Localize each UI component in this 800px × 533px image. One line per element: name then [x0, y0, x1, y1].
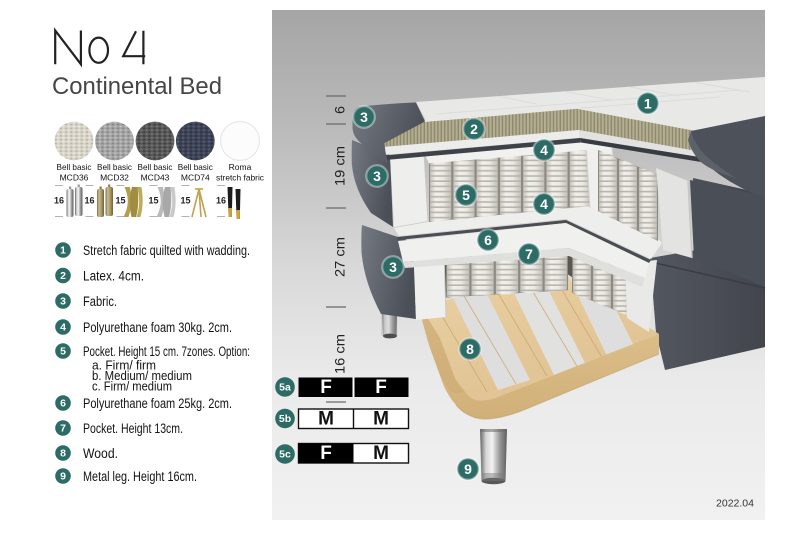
svg-text:MCD36: MCD36: [60, 173, 89, 183]
svg-text:16: 16: [54, 196, 64, 206]
svg-text:16: 16: [84, 196, 94, 206]
svg-text:Bell basic: Bell basic: [178, 162, 214, 172]
svg-text:2: 2: [60, 270, 66, 282]
svg-text:M: M: [373, 443, 389, 464]
svg-text:MCD32: MCD32: [100, 173, 129, 183]
svg-text:8: 8: [60, 448, 66, 460]
svg-text:6: 6: [484, 232, 492, 248]
svg-text:M: M: [318, 409, 334, 430]
svg-text:27 cm: 27 cm: [332, 237, 348, 277]
svg-text:Fabric.: Fabric.: [83, 294, 117, 309]
svg-text:7: 7: [525, 246, 533, 262]
svg-text:8: 8: [466, 341, 474, 357]
svg-text:F: F: [320, 377, 332, 398]
svg-text:3: 3: [360, 109, 368, 125]
svg-text:Bell basic: Bell basic: [97, 162, 133, 172]
svg-text:5c: 5c: [279, 449, 291, 461]
svg-text:Roma: Roma: [229, 162, 252, 172]
svg-text:Bell basic: Bell basic: [57, 162, 93, 172]
svg-text:1: 1: [644, 95, 652, 111]
svg-text:Polyurethane foam 30kg. 2cm.: Polyurethane foam 30kg. 2cm.: [83, 320, 232, 335]
svg-text:4: 4: [540, 196, 548, 212]
svg-text:9: 9: [60, 471, 66, 483]
svg-text:Wood.: Wood.: [83, 446, 118, 461]
svg-text:MCD74: MCD74: [181, 173, 210, 183]
svg-text:1: 1: [60, 245, 66, 257]
svg-text:Polyurethane foam 25kg. 2cm.: Polyurethane foam 25kg. 2cm.: [83, 396, 232, 411]
svg-text:15: 15: [148, 196, 158, 206]
svg-text:5: 5: [462, 187, 470, 203]
svg-text:MCD43: MCD43: [141, 173, 170, 183]
svg-text:7: 7: [60, 423, 66, 435]
svg-text:Metal leg. Height 16cm.: Metal leg. Height 16cm.: [83, 469, 197, 484]
svg-text:9: 9: [464, 461, 472, 477]
svg-text:15: 15: [115, 196, 125, 206]
svg-text:6: 6: [60, 398, 66, 410]
svg-text:Stretch fabric quilted with wa: Stretch fabric quilted with wadding.: [83, 243, 250, 258]
svg-text:4: 4: [540, 142, 548, 158]
svg-text:M: M: [373, 409, 389, 430]
svg-text:6: 6: [332, 106, 348, 114]
svg-text:5a: 5a: [279, 382, 291, 394]
svg-text:F: F: [375, 377, 387, 398]
svg-text:Latex. 4cm.: Latex. 4cm.: [83, 268, 144, 283]
svg-text:15: 15: [180, 196, 190, 206]
svg-text:19 cm: 19 cm: [332, 146, 348, 186]
svg-text:16 cm: 16 cm: [332, 334, 348, 374]
svg-text:5: 5: [60, 346, 66, 358]
svg-text:c. Firm/ medium: c. Firm/ medium: [92, 378, 172, 393]
svg-text:F: F: [320, 443, 332, 464]
svg-text:Continental Bed: Continental Bed: [52, 73, 222, 100]
svg-text:2: 2: [470, 121, 478, 137]
svg-text:16: 16: [216, 196, 226, 206]
svg-text:3: 3: [373, 168, 381, 184]
svg-text:5b: 5b: [279, 413, 291, 425]
svg-text:stretch fabric: stretch fabric: [216, 173, 265, 183]
svg-text:Pocket. Height 13cm.: Pocket. Height 13cm.: [83, 421, 183, 436]
svg-text:4: 4: [60, 322, 66, 334]
svg-text:3: 3: [60, 296, 66, 308]
svg-text:Bell basic: Bell basic: [138, 162, 174, 172]
svg-text:2022.04: 2022.04: [716, 498, 754, 510]
svg-text:3: 3: [389, 259, 397, 275]
